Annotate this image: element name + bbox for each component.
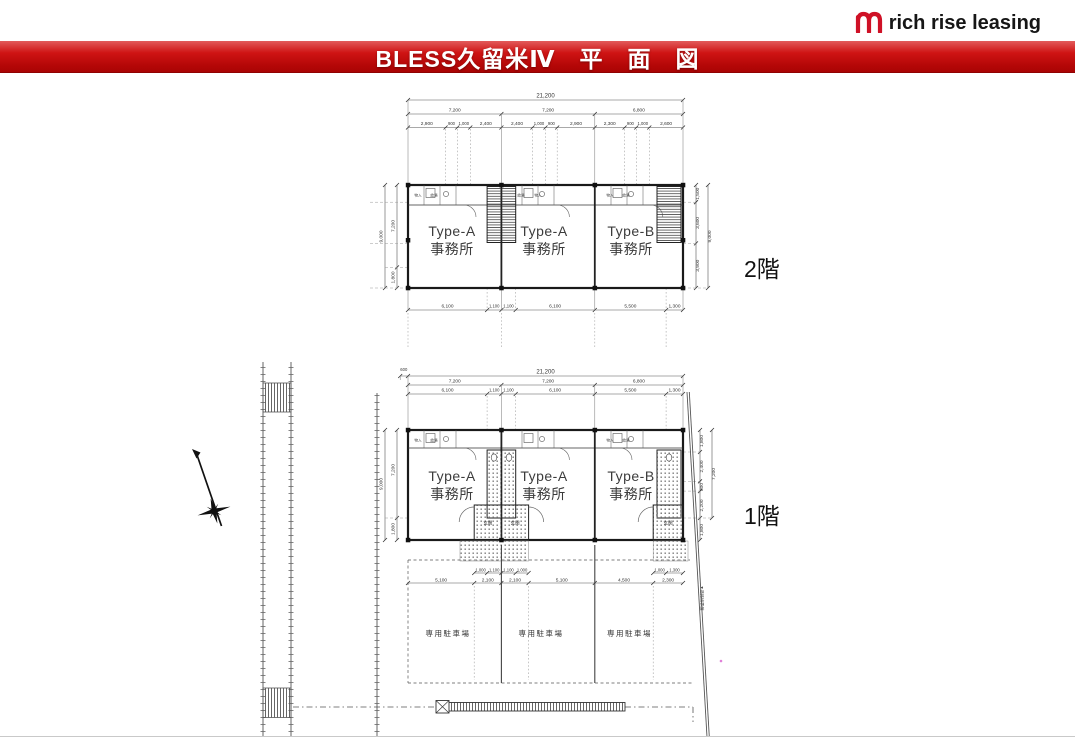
dim-label: 2,600 (660, 121, 672, 127)
logo-mark-icon (855, 7, 885, 33)
unit-name: Type-A (520, 223, 568, 239)
dim-label: 800 (699, 483, 705, 491)
dim-label: 1,300 (668, 304, 680, 310)
unit-name: Type-B (607, 468, 654, 484)
dim-label: 1,100 (503, 304, 514, 309)
fixture-label: 物入 (414, 438, 422, 443)
dim-label: 7,200 (542, 108, 554, 114)
floor-plan-drawing: 21,200 7,200 7,200 6,800 2,900 900 1,000… (0, 0, 1075, 754)
parking-label: 専用駐車場 (519, 628, 564, 638)
dim-label: 6,100 (441, 304, 453, 310)
unit-name: Type-A (428, 223, 476, 239)
dim-label: 1,000 (475, 568, 486, 573)
f1-building-outline (408, 430, 683, 540)
dim-label: 1,000 (534, 121, 545, 126)
dim-label: 1,100 (489, 304, 500, 309)
dim-label: 1,100 (489, 568, 500, 573)
dim-label: 4,500 (618, 578, 630, 584)
fixture-label: 物入 (534, 193, 542, 198)
entrance-label: 玄関 (663, 520, 673, 527)
dim-label: 7,200 (391, 220, 397, 232)
dim-label: 6,100 (549, 387, 561, 393)
crosswalk-hatch (263, 383, 291, 412)
dim-label: 900 (548, 121, 556, 126)
dim-label: 5,500 (624, 387, 636, 393)
dim-label: 1,100 (489, 387, 500, 392)
dim-label: 900 (627, 121, 635, 126)
page-title: BLESS久留米Ⅳ 平 面 図 (376, 40, 700, 74)
parking-label: 専用駐車場 (426, 628, 471, 638)
fixture-label: 物入 (414, 193, 422, 198)
dim-label: 2,200 (699, 499, 705, 511)
dim-label: 2,100 (509, 578, 521, 584)
unit-name: Type-A (428, 468, 476, 484)
dim-label: 1,000 (638, 121, 649, 126)
fixture-label: 物入 (606, 193, 614, 198)
dim-label: 2,100 (482, 578, 494, 584)
dim-label: 6,800 (633, 108, 645, 114)
site-fence-bar (293, 701, 693, 723)
fixture-label: 給湯 (622, 193, 630, 198)
dim-label: 1,800 (699, 435, 705, 447)
dim-label: 5,100 (556, 578, 568, 584)
entrance-label: 玄関 (510, 520, 520, 527)
dim-label: 7,200 (711, 468, 717, 480)
dim-label: 21,200 (536, 369, 555, 375)
unit-name: Type-A (520, 468, 568, 484)
parking-area (408, 545, 693, 683)
dim-label: 5,100 (435, 578, 447, 584)
fixture-label: 給湯 (430, 193, 438, 198)
dim-label: 6,800 (633, 378, 645, 384)
logo-text: rich rise leasing (889, 13, 1041, 33)
dim-label: 1,500 (695, 187, 701, 199)
unit-type: 事務所 (522, 486, 566, 502)
dim-label: 900 (448, 121, 456, 126)
dim-label: 1,800 (391, 271, 397, 283)
dim-label: 1,100 (503, 568, 514, 573)
dim-label: 2,900 (421, 121, 433, 127)
title-banner: BLESS久留米Ⅳ 平 面 図 (0, 41, 1075, 73)
dim-label: 1,800 (699, 524, 705, 536)
dim-label: 21,200 (536, 94, 555, 100)
dim-label: 600 (400, 367, 408, 372)
boundary-label: ▼道路境界線 (699, 585, 706, 611)
crosswalk-hatch (263, 688, 291, 718)
unit-type: 事務所 (609, 486, 653, 502)
fixture-label: 給湯 (622, 438, 630, 443)
dim-label: 1,100 (503, 387, 514, 392)
north-arrow (192, 449, 234, 528)
dim-label: 7,200 (449, 378, 461, 384)
floor-label-1f: 1階 (744, 503, 780, 529)
dim-label: 5,500 (624, 304, 636, 310)
unit-name: Type-B (607, 223, 654, 239)
parking-label: 専用駐車場 (607, 628, 652, 638)
stray-mark (720, 660, 723, 663)
dim-label: 7,200 (391, 464, 397, 476)
dim-label: 2,400 (480, 121, 492, 127)
fixture-label: 物入 (606, 438, 614, 443)
dim-label: 2,400 (511, 121, 523, 127)
dim-label: 3,900 (695, 259, 701, 271)
dim-label: 2,300 (662, 578, 674, 584)
company-logo: rich rise leasing (855, 7, 1041, 33)
dim-label: 1,800 (391, 523, 397, 535)
floor1-plan: 600 21,200 7,200 7,200 6,800 6,100 1,100… (379, 367, 780, 683)
dim-label: 2,400 (699, 460, 705, 472)
fixture-label: 給湯 (517, 193, 525, 198)
dim-label: 9,000 (379, 230, 385, 242)
floor2-plan: 21,200 7,200 7,200 6,800 2,900 900 1,000… (370, 94, 780, 349)
unit-type: 事務所 (609, 241, 653, 257)
dim-label: 2,900 (570, 121, 582, 127)
dim-label: 6,100 (441, 387, 453, 393)
dim-label: 7,200 (542, 378, 554, 384)
dim-label: 3,600 (695, 217, 701, 229)
dim-label: 1,300 (668, 387, 680, 393)
dim-label: 1,000 (459, 121, 470, 126)
dim-label: 1,000 (654, 568, 665, 573)
dim-label: 2,300 (604, 121, 616, 127)
dim-label: 9,000 (707, 230, 713, 242)
fixture-label: 給湯 (430, 438, 438, 443)
dim-label: 6,100 (549, 304, 561, 310)
dim-label: 7,200 (449, 108, 461, 114)
unit-type: 事務所 (522, 241, 566, 257)
floor-label-2f: 2階 (744, 256, 780, 282)
unit-type: 事務所 (430, 486, 474, 502)
entrance-label: 玄関 (483, 520, 493, 527)
unit-type: 事務所 (430, 241, 474, 257)
dim-label: 1,300 (669, 568, 680, 573)
dim-label: 1,000 (517, 568, 528, 573)
